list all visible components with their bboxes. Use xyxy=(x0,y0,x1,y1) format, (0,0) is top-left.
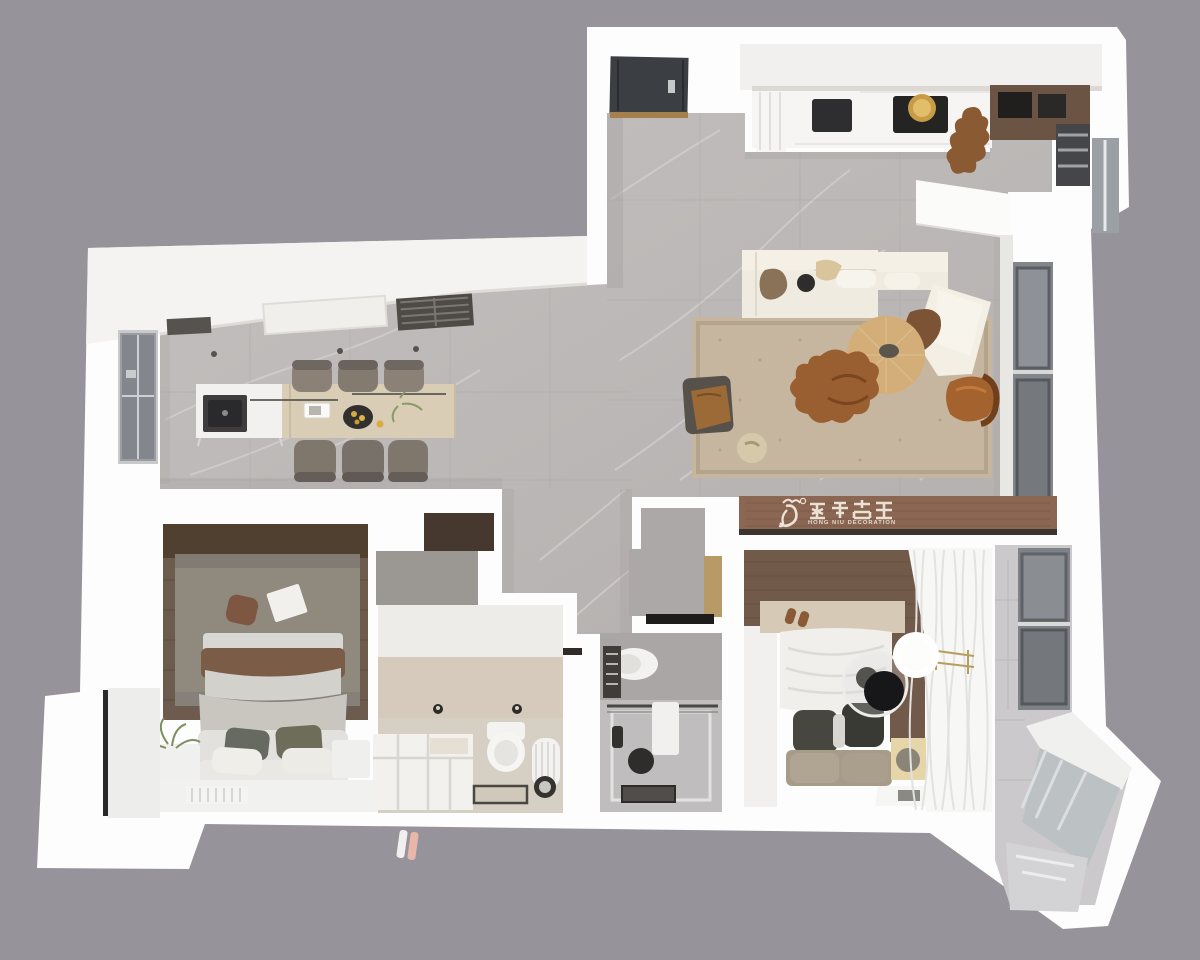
svg-text:HONG NIU DECORATION: HONG NIU DECORATION xyxy=(808,520,896,526)
